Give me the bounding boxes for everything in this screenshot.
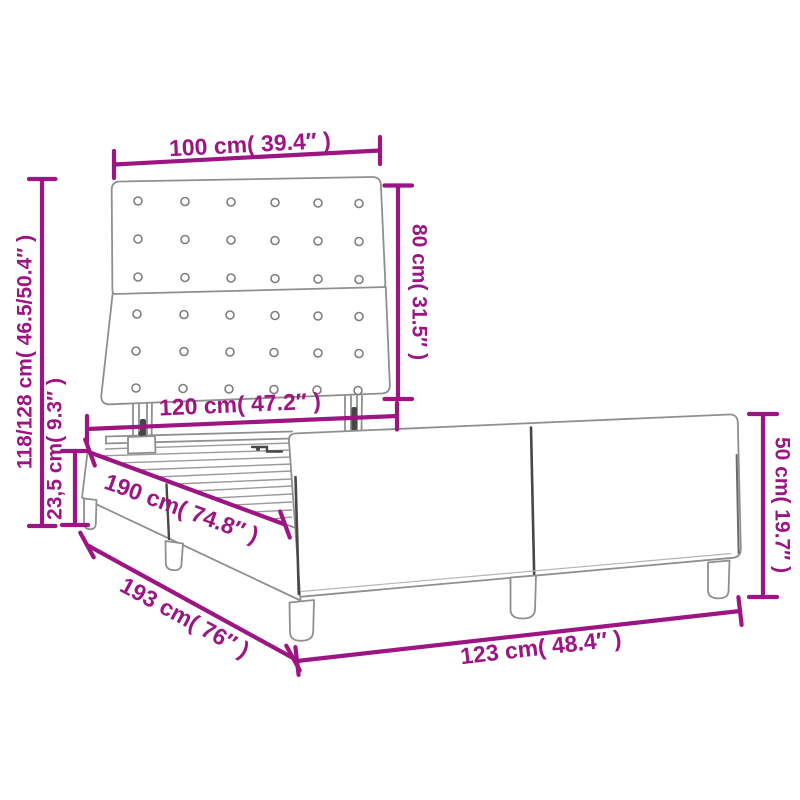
headboard-upper-panel [112, 177, 386, 297]
strut-screw [138, 431, 143, 436]
leg [511, 576, 537, 619]
dimension-headboard-width: 100 cm( 39.4″ ) [114, 127, 380, 178]
dimension-footboard-height: 50 cm( 19.7″ ) [749, 414, 793, 597]
strut-foot-plate [128, 436, 156, 454]
dimension-base-height: 23,5 cm( 9.3″ ) [44, 378, 88, 525]
dim-label-base-height: 23,5 cm( 9.3″ ) [44, 378, 67, 520]
bed-diagram-svg: 100 cm( 39.4″ ) 80 cm( 31.5″ ) 118/128 c… [0, 0, 800, 800]
footboard-panel [289, 414, 741, 596]
leg [708, 561, 730, 599]
dimension-diagram: 100 cm( 39.4″ ) 80 cm( 31.5″ ) 118/128 c… [0, 0, 800, 800]
dimension-headboard-height: 80 cm( 31.5″ ) [385, 186, 431, 400]
dim-label-footboard-height: 50 cm( 19.7″ ) [770, 437, 793, 573]
dim-label-outer-length: 193 cm( 76″ ) [116, 572, 254, 663]
headboard [101, 177, 390, 404]
headboard-lower-panel [101, 287, 390, 404]
leg [166, 541, 184, 570]
headboard-strut-right [345, 396, 362, 431]
leg [290, 600, 315, 641]
dim-label-headboard-height: 80 cm( 31.5″ ) [407, 224, 430, 360]
dim-label-overall-height: 118/128 cm( 46.5/50.4″ ) [14, 235, 37, 469]
